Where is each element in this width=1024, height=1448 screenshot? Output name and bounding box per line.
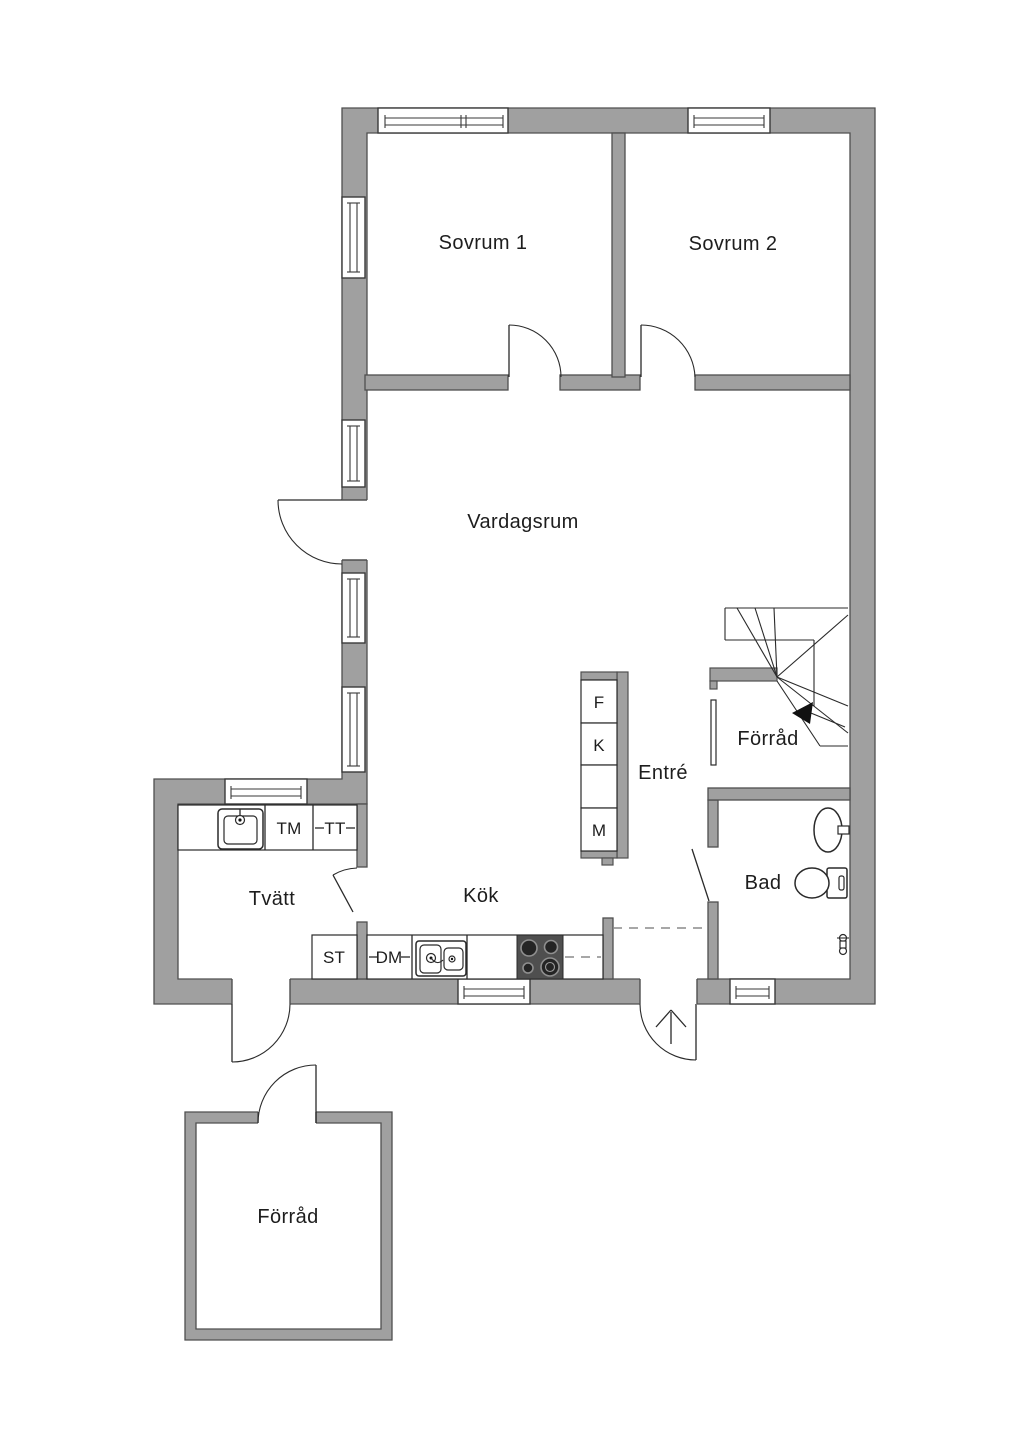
fridge-label: K [593,736,605,755]
stove-icon [517,935,563,979]
bath-wall-upper [708,800,718,847]
tvatt-wall-lower [357,922,367,979]
door-sovrum2 [641,325,695,377]
dryer-label: TT [324,819,345,838]
kitchen-wall-stub [603,918,613,979]
room-label-vardagsrum: Vardagsrum [467,511,578,533]
shower-mixer-icon [837,935,849,955]
patio-door-vardagsrum [278,500,342,564]
room-label-entre: Entré [638,762,688,784]
room-label-kok: Kök [463,885,499,907]
stair-direction-arrow [792,702,845,727]
room-label-forrad-stairs: Förråd [737,728,798,750]
freezer-label: F [594,693,605,712]
bath-sink-icon [814,808,849,852]
window-vardagsrum-left-3 [342,687,365,772]
room-label-sovrum1: Sovrum 1 [439,232,528,254]
room-label-bad: Bad [745,872,782,894]
window-vardagsrum-left-2 [342,573,365,643]
room-label-forrad-outbuilding: Förråd [257,1206,318,1228]
door-tvatt-exterior [232,1004,290,1062]
bedroom-divider-wall [612,133,625,377]
bathroom-fixtures [795,808,849,955]
kitchen-sink-icon [416,941,466,976]
window-kok-bottom [458,979,530,1004]
toilet-icon [795,868,847,898]
door-tvatt-interior [333,868,357,912]
window-bad-bottom [730,979,775,1004]
bath-wall-lower [708,902,718,979]
window-sovrum2-top [688,108,770,133]
floor-plan-drawing: Sovrum 1 Sovrum 2 Vardagsrum Entré Förrå… [0,0,1024,1448]
window-vardagsrum-left-1 [342,420,365,487]
door-sovrum1 [509,325,561,377]
room-label-sovrum2: Sovrum 2 [689,233,778,255]
window-sovrum1-left [342,197,365,278]
door-bad [692,849,709,901]
window-sovrum1-top [378,108,508,133]
entrance-arrow-icon [656,1010,686,1044]
window-tvatt-top [225,779,307,804]
laundry-sink-icon [218,809,263,849]
floor-plan-page: Sovrum 1 Sovrum 2 Vardagsrum Entré Förrå… [0,0,1024,1448]
stair-landing-wall [710,668,777,681]
kitchen-counter [312,935,603,979]
washer-label: TM [277,819,302,838]
bath-forrad-wall [708,788,850,800]
door-forrad-stairs [711,700,716,765]
micro-label: M [592,821,606,840]
entrance-door [640,1004,696,1060]
exterior-walls [154,108,875,1340]
appliance-labels: TM TT ST DM F K M [277,693,607,967]
cleaning-closet-label: ST [323,948,345,967]
room-label-tvatt: Tvätt [249,888,295,910]
tvatt-wall-upper [357,804,367,867]
dishwasher-label: DM [376,948,403,967]
